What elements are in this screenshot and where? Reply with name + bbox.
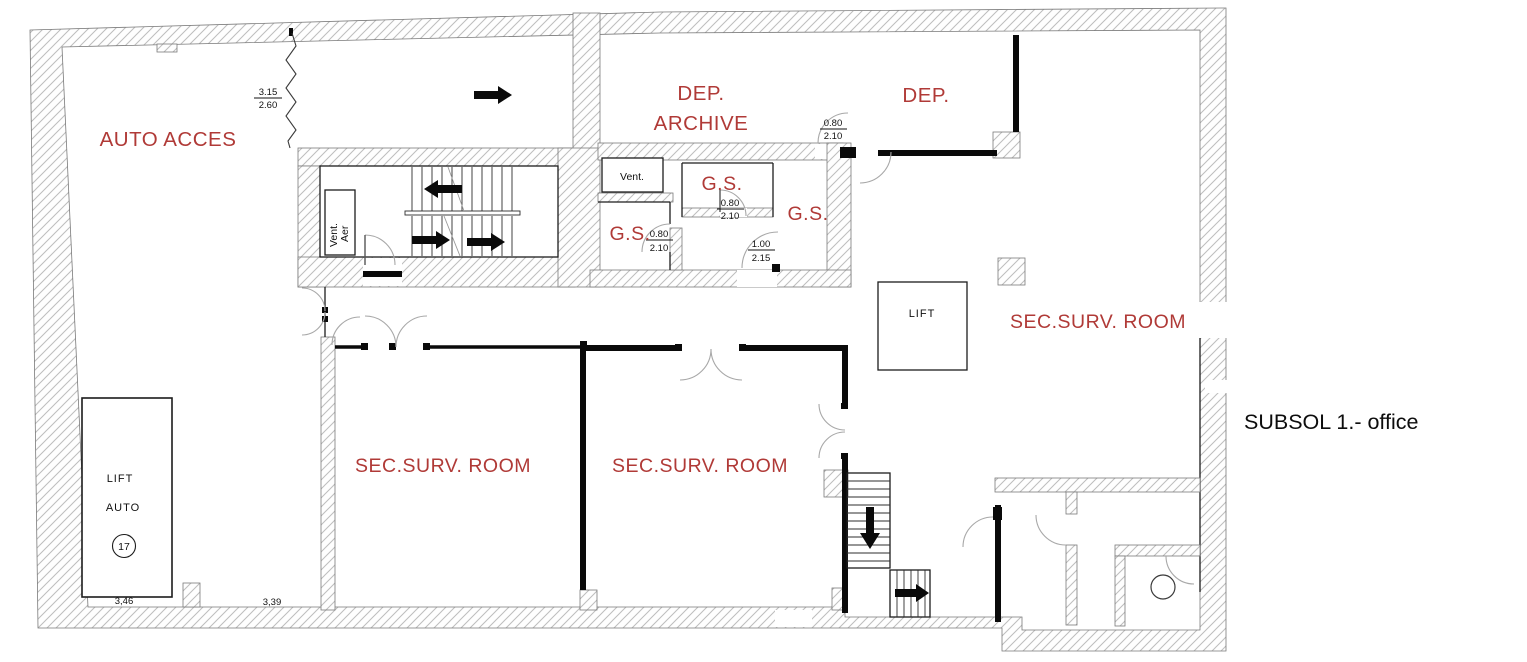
- dim-value: 2.10: [721, 211, 740, 222]
- dim-corridor-door: 1.00 2.15: [748, 239, 775, 264]
- dim-value: 2.10: [650, 243, 669, 254]
- label-dep: DEP.: [902, 84, 949, 107]
- stair-arrow-left-icon: [424, 180, 462, 198]
- label-sec-surv-left: SEC.SURV. ROOM: [355, 455, 531, 477]
- right-wall-opening: [1197, 302, 1228, 338]
- dim-value: 0.80: [721, 198, 740, 209]
- right-wall-opening: [1205, 380, 1228, 393]
- plan-title: SUBSOL 1.- office: [1244, 410, 1418, 434]
- label-lift-auto-2: AUTO: [106, 502, 140, 514]
- label-vent: Vent.: [620, 171, 644, 183]
- label-dep-archive-2: ARCHIVE: [654, 112, 749, 135]
- dim-value: 3.15: [259, 87, 278, 98]
- label-sec-surv-mid: SEC.SURV. ROOM: [612, 455, 788, 477]
- label-vent-aer-2: Aer: [339, 225, 351, 242]
- stair-arrow-right-icon: [412, 231, 450, 249]
- dim-value: 1.00: [752, 239, 771, 250]
- wall-pier: [993, 132, 1020, 158]
- label-lift-auto-1: LIFT: [107, 473, 134, 485]
- stair-arrow-right-icon: [467, 233, 505, 251]
- label-gs-left: G.S.: [609, 223, 650, 245]
- label-dep-archive-1: DEP.: [677, 82, 724, 105]
- label-sec-surv-right: SEC.SURV. ROOM: [1010, 311, 1186, 333]
- floor-plan-page: 3.15 2.60 0.80 2.10 0.80 2.10 0.80 2.10 …: [0, 0, 1527, 662]
- dim-value: 2.10: [824, 131, 843, 142]
- lift-auto-shaft: [82, 398, 172, 597]
- label-auto-acces: AUTO ACCES: [100, 128, 237, 151]
- dim-value: 2.15: [752, 253, 771, 264]
- dim-ramp: 3.15 2.60: [254, 87, 282, 111]
- dim-value: 2.60: [259, 100, 278, 111]
- ramp-arrow-right-icon: [474, 86, 512, 104]
- lift-shaft: [878, 282, 967, 370]
- floor-plan-canvas: 3.15 2.60 0.80 2.10 0.80 2.10 0.80 2.10 …: [0, 0, 1527, 662]
- dim-value: 0.80: [824, 118, 843, 129]
- dim-value: 0.80: [650, 229, 669, 240]
- break-line: [286, 33, 296, 148]
- wall-notch: [157, 44, 177, 52]
- column: [998, 258, 1025, 285]
- toilet-fixture-icon: [1151, 575, 1175, 599]
- label-gs-right: G.S.: [787, 203, 828, 225]
- bottom-wall-opening: [775, 610, 812, 627]
- dim-bay-left: 3,46: [115, 596, 134, 607]
- dim-archive-door: 0.80 2.10: [820, 118, 847, 142]
- label-lift-shaft: LIFT: [909, 308, 936, 320]
- label-gs-mid: G.S.: [701, 173, 742, 195]
- exit-arrow-right-icon: [895, 584, 929, 602]
- dim-bay-right: 3,39: [263, 597, 282, 608]
- label-lift-auto-number: 17: [118, 541, 130, 553]
